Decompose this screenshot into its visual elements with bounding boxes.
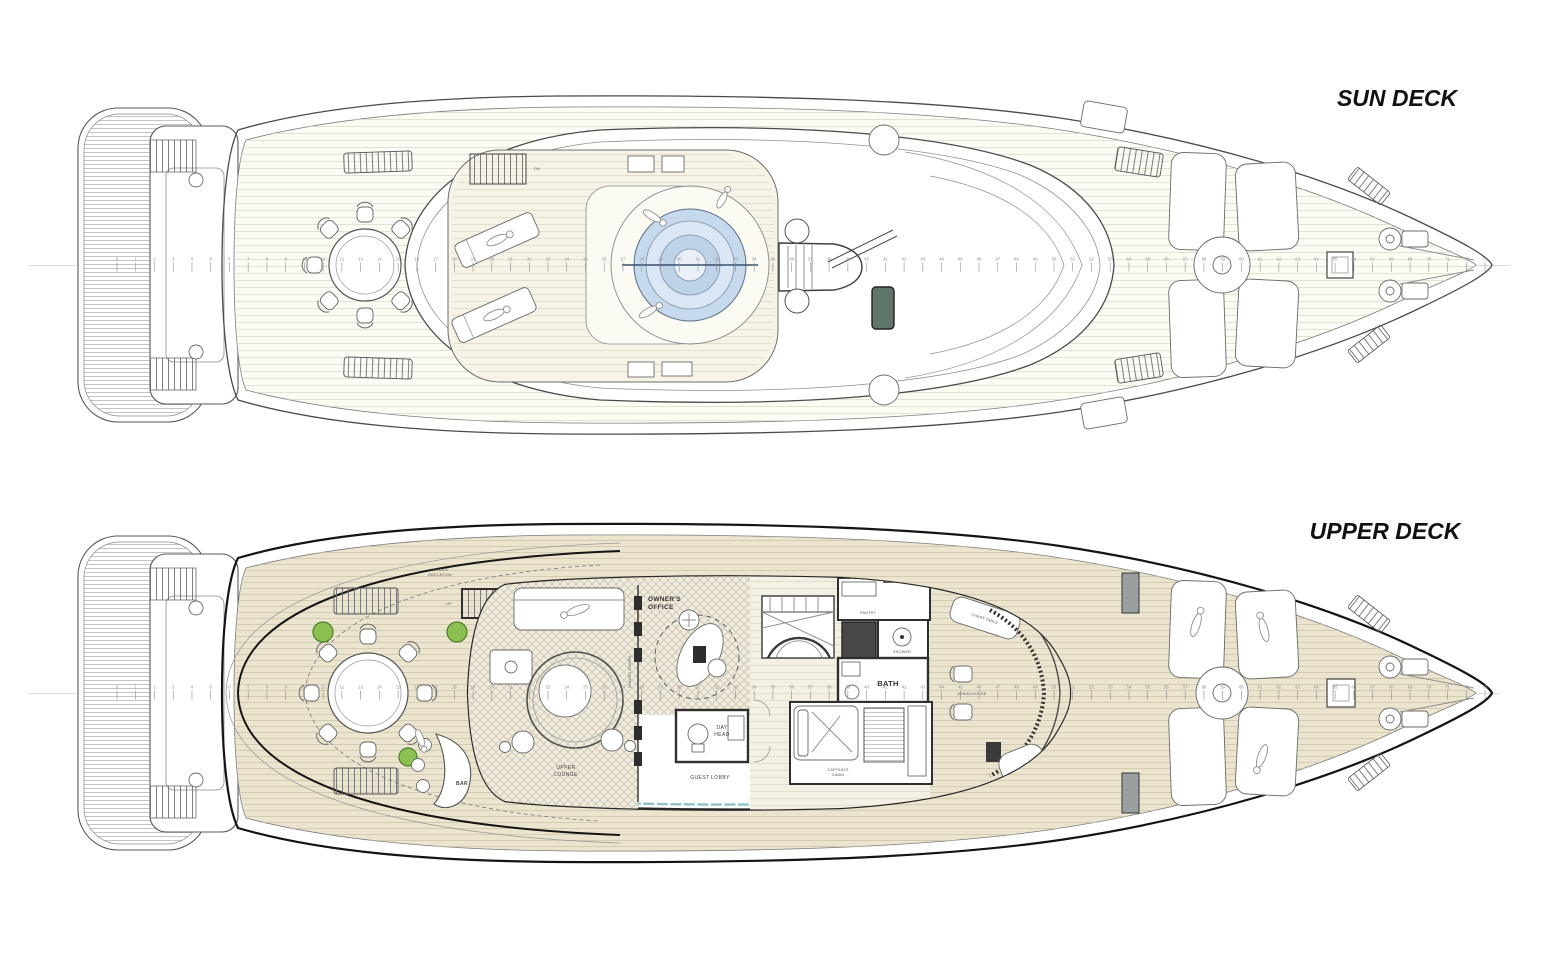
- aft-vent-starboard: [334, 768, 398, 794]
- frame-number: 17: [433, 685, 438, 690]
- frame-number: 43: [920, 685, 925, 690]
- frame-number: 31: [696, 257, 701, 262]
- frame-number: 32: [714, 257, 719, 262]
- frame-number: 24: [564, 257, 569, 262]
- frame-number: 69: [1408, 685, 1413, 690]
- plant: [313, 622, 333, 642]
- bar-stool: [412, 759, 425, 772]
- captains-cabin: CAPTAIN'S CABIN: [790, 702, 932, 784]
- frame-number: 66: [1352, 685, 1357, 690]
- frame-number: 62: [1277, 685, 1282, 690]
- dining-table-top: [328, 653, 408, 733]
- aft-vent-port: [334, 588, 398, 614]
- frame-number: 58: [1202, 685, 1207, 690]
- frame-number: 37: [808, 257, 813, 262]
- privacy-label-2: INDICATION: [428, 573, 452, 577]
- frame-number: 52: [1089, 685, 1094, 690]
- frame-number: 28: [639, 257, 644, 262]
- dining-table-top: [329, 229, 401, 301]
- deck-fitting: [189, 773, 203, 787]
- sun-pad: [1235, 278, 1299, 368]
- bar-stool: [417, 780, 430, 793]
- frame-number: 63: [1295, 257, 1300, 262]
- frame-number: 68: [1389, 685, 1394, 690]
- frame-number: 58: [1202, 257, 1207, 262]
- frame-number: 21: [508, 685, 513, 690]
- frame-number: 28: [639, 685, 644, 690]
- frame-number: 71: [1445, 685, 1450, 690]
- frame-number: 61: [1258, 257, 1263, 262]
- frame-number: 39: [846, 685, 851, 690]
- fore-hatch: [1327, 679, 1355, 707]
- frame-number: 12: [340, 257, 345, 262]
- frame-number: 69: [1408, 257, 1413, 262]
- frame-number: 26: [602, 257, 607, 262]
- frame-number: 27: [621, 257, 626, 262]
- toilet: [688, 724, 708, 744]
- desk-chair: [708, 659, 726, 677]
- frame-number: 66: [1352, 257, 1357, 262]
- frame-number: 47: [995, 257, 1000, 262]
- frame-number: 70: [1426, 257, 1431, 262]
- shower-room: SHOWER: [878, 620, 928, 658]
- frame-number: 64: [1314, 685, 1319, 690]
- frame-number: 64: [1314, 257, 1319, 262]
- frame-number: 36: [789, 685, 794, 690]
- frame-number: 38: [827, 257, 832, 262]
- sliding-doors-label: SLIDING DOORS: [628, 655, 632, 688]
- deck-box: [628, 362, 654, 377]
- stern-stairs-port: [150, 140, 196, 172]
- sun-deck-title: SUN DECK: [1337, 85, 1459, 111]
- side-gate-starboard: [1122, 773, 1139, 813]
- frame-number: 60: [1239, 685, 1244, 690]
- frame-number: 25: [583, 685, 588, 690]
- frame-number: 73: [1483, 685, 1488, 690]
- frame-number: 35: [771, 685, 776, 690]
- skylight: [872, 287, 894, 329]
- frame-number: 72: [1464, 257, 1469, 262]
- privacy-label-1: PRIVACY: [431, 568, 449, 572]
- frame-number: 33: [733, 257, 738, 262]
- frame-number: 40: [864, 257, 869, 262]
- frame-number: 73: [1483, 257, 1488, 262]
- frame-number: 26: [602, 685, 607, 690]
- frame-number: 23: [546, 257, 551, 262]
- frame-number: 11: [321, 685, 326, 690]
- frame-number: 48: [1014, 257, 1019, 262]
- frame-number: 57: [1183, 257, 1188, 262]
- frame-number: 52: [1089, 257, 1094, 262]
- frame-number: 41: [883, 685, 888, 690]
- stairs-down-label: DN: [534, 167, 540, 171]
- frame-number: 48: [1014, 685, 1019, 690]
- frame-number: 34: [752, 685, 757, 690]
- frame-number: 59: [1220, 257, 1225, 262]
- frame-number: 20: [489, 685, 494, 690]
- owners-office-label-1: OWNER'S: [648, 596, 681, 603]
- bath: BATH: [838, 658, 928, 702]
- frame-number: 68: [1389, 257, 1394, 262]
- radar-dome: [785, 289, 809, 313]
- frame-number: 11: [321, 257, 326, 262]
- frame-number: 15: [396, 685, 401, 690]
- frame-number: 55: [1145, 257, 1150, 262]
- frame-number: 22: [527, 257, 532, 262]
- stairs-up-label: UP: [446, 602, 452, 606]
- frame-number: 50: [1052, 257, 1057, 262]
- frame-number: 51: [1070, 257, 1075, 262]
- frame-number: 17: [433, 257, 438, 262]
- frame-number: 45: [958, 685, 963, 690]
- frame-number: 19: [471, 685, 476, 690]
- deck-hatch: [869, 375, 899, 405]
- frame-number: 31: [696, 685, 701, 690]
- frame-number: 20: [489, 257, 494, 262]
- upper-deck-plan: BAR UP PRIVACY INDICATION: [28, 518, 1500, 862]
- frame-number: 10: [302, 257, 307, 262]
- sun-pad: [1168, 707, 1226, 806]
- stairs-down: [864, 708, 904, 762]
- frame-number: 63: [1295, 685, 1300, 690]
- captains-cabin-label-1: CAPTAIN'S: [827, 768, 848, 772]
- frame-number: 49: [1033, 257, 1038, 262]
- office-table: [679, 610, 699, 630]
- stern-stairs-port: [150, 568, 196, 600]
- frame-number: 14: [377, 685, 382, 690]
- frame-number: 32: [714, 685, 719, 690]
- deck-fitting: [189, 345, 203, 359]
- frame-number: 42: [902, 257, 907, 262]
- frame-number: 38: [827, 685, 832, 690]
- sun-deck-plan: DN: [28, 85, 1510, 434]
- sun-pad: [1168, 152, 1226, 251]
- frame-number: 18: [452, 257, 457, 262]
- pillow: [798, 710, 808, 756]
- frame-number: 35: [771, 257, 776, 262]
- frame-number: 25: [583, 257, 588, 262]
- frame-number: 22: [527, 685, 532, 690]
- deck-fitting: [189, 173, 203, 187]
- frame-number: 40: [864, 685, 869, 690]
- frame-number: 62: [1277, 257, 1282, 262]
- frame-number: 30: [677, 257, 682, 262]
- ottoman: [539, 665, 591, 717]
- frame-number: 34: [752, 257, 757, 262]
- sun-lounge-area: DN: [448, 150, 778, 382]
- day-head: DAY HEAD: [676, 710, 748, 762]
- frame-number: 39: [846, 257, 851, 262]
- frame-number: 46: [977, 257, 982, 262]
- owners-office-label-2: OFFICE: [648, 604, 674, 611]
- frame-number: 72: [1464, 685, 1469, 690]
- captains-cabin-label-2: CABIN: [832, 773, 845, 777]
- frame-number: 67: [1370, 257, 1375, 262]
- stairs-down: [470, 154, 526, 184]
- frame-number: 13: [358, 257, 363, 262]
- frame-number: 55: [1145, 685, 1150, 690]
- frame-number: 13: [358, 685, 363, 690]
- stern-stairs-starboard: [150, 786, 196, 818]
- swim-platform: [78, 108, 238, 422]
- sink: [842, 662, 860, 676]
- frame-number: 41: [883, 257, 888, 262]
- frame-number: 19: [471, 257, 476, 262]
- pantry-label: PANTRY: [860, 611, 877, 615]
- frame-number: 56: [1164, 257, 1169, 262]
- upper-lounge-label-1: UPPER: [556, 765, 575, 771]
- cabinet: [908, 706, 926, 776]
- frame-number: 12: [340, 685, 345, 690]
- frame-number: 33: [733, 685, 738, 690]
- shower-label: SHOWER: [893, 650, 911, 654]
- day-head-label-1: DAY: [716, 725, 727, 731]
- frame-number: 14: [377, 257, 382, 262]
- frame-number: 51: [1070, 685, 1075, 690]
- swim-platform: [78, 536, 238, 850]
- frame-number: 21: [508, 257, 513, 262]
- frame-number: 53: [1108, 685, 1113, 690]
- frame-number: 53: [1108, 257, 1113, 262]
- fore-hatch: [1327, 252, 1353, 278]
- frame-number: 56: [1164, 685, 1169, 690]
- deck-fitting: [189, 601, 203, 615]
- frame-number: 54: [1127, 257, 1132, 262]
- frame-number: 61: [1258, 685, 1263, 690]
- frame-number: 70: [1426, 685, 1431, 690]
- deck-hatch: [869, 125, 899, 155]
- frame-number: 50: [1052, 685, 1057, 690]
- desk-monitor: [693, 646, 706, 663]
- frame-number: 29: [658, 257, 663, 262]
- frame-number: 36: [789, 257, 794, 262]
- frame-number: 27: [621, 685, 626, 690]
- sun-pad: [1168, 279, 1226, 378]
- deck-box: [662, 156, 684, 172]
- upper-lounge-label-2: LOUNGE: [554, 772, 578, 778]
- frame-number: 67: [1370, 685, 1375, 690]
- sun-pad: [1235, 161, 1299, 251]
- frame-number: 65: [1333, 685, 1338, 690]
- frame-number: 29: [658, 685, 663, 690]
- frame-number: 71: [1445, 257, 1450, 262]
- frame-number: 57: [1183, 685, 1188, 690]
- frame-number: 23: [546, 685, 551, 690]
- stern-stairs-starboard: [150, 358, 196, 390]
- frame-number: 30: [677, 685, 682, 690]
- frame-number: 18: [452, 685, 457, 690]
- table: [986, 742, 1001, 762]
- frame-number: 65: [1333, 257, 1338, 262]
- frame-number: 10: [302, 685, 307, 690]
- bath-label: BATH: [877, 679, 898, 688]
- frame-number: 44: [939, 257, 944, 262]
- frame-number: 59: [1220, 685, 1225, 690]
- frame-number: 47: [995, 685, 1000, 690]
- frame-number: 45: [958, 257, 963, 262]
- upper-deck-title: UPPER DECK: [1310, 518, 1462, 544]
- frame-number: 46: [977, 685, 982, 690]
- radar-dome: [785, 219, 809, 243]
- plant: [447, 622, 467, 642]
- day-head-label-2: HEAD: [714, 732, 730, 738]
- yacht-deck-plans: DN: [0, 0, 1556, 954]
- bar-label: BAR: [456, 781, 468, 787]
- frame-number: 16: [415, 685, 420, 690]
- sofa: [514, 588, 624, 630]
- deck-box: [628, 156, 654, 172]
- lift-shaft: [842, 622, 876, 658]
- frame-number: 54: [1127, 685, 1132, 690]
- guest-lobby-label: GUEST LOBBY: [690, 775, 730, 781]
- side-gate-port: [1122, 573, 1139, 613]
- wheelhouse-label: WHEELHOUSE: [957, 692, 986, 696]
- frame-number: 24: [564, 685, 569, 690]
- frame-number: 44: [939, 685, 944, 690]
- frame-number: 16: [415, 257, 420, 262]
- frame-number: 49: [1033, 685, 1038, 690]
- frame-number: 43: [920, 257, 925, 262]
- deck-box: [662, 362, 692, 376]
- counter: [842, 582, 876, 596]
- vanity: [728, 716, 744, 740]
- frame-number: 37: [808, 685, 813, 690]
- frame-number: 60: [1239, 257, 1244, 262]
- frame-number: 15: [396, 257, 401, 262]
- frame-number: 42: [902, 685, 907, 690]
